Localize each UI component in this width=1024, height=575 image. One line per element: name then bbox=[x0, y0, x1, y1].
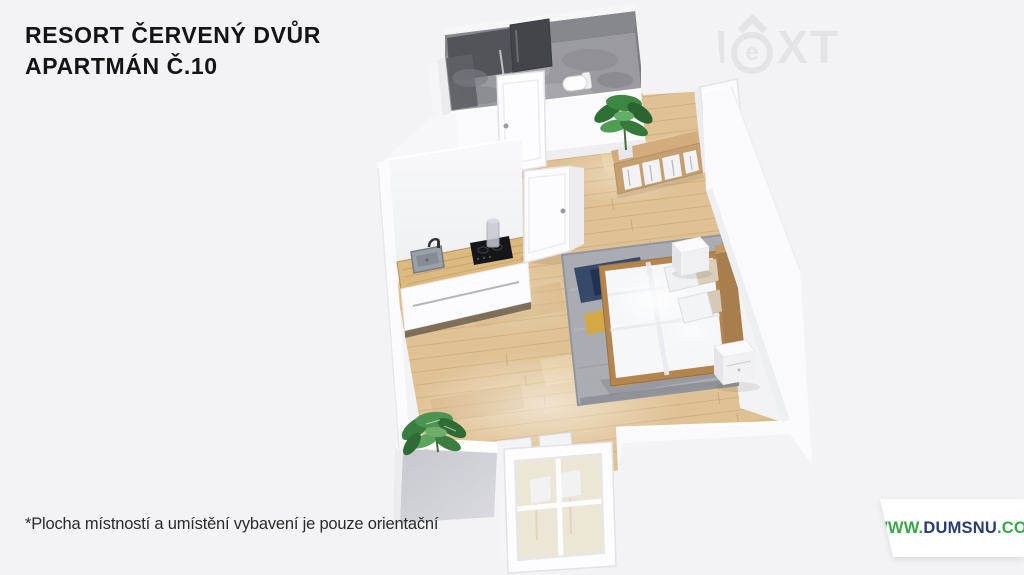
carafe bbox=[487, 219, 499, 248]
northeast-wall-top bbox=[640, 20, 723, 95]
nightstand-north bbox=[672, 237, 712, 279]
website-domain: DUMSNU bbox=[923, 519, 997, 538]
front-wall-outer-face bbox=[400, 449, 497, 523]
door-handle bbox=[504, 124, 509, 129]
floor-plan-render bbox=[0, 0, 1024, 575]
title-line-2: APARTMÁN Č.10 bbox=[25, 51, 321, 82]
door-handle bbox=[561, 209, 566, 214]
website-prefix: WWW. bbox=[872, 519, 923, 538]
nightstand-south bbox=[714, 340, 760, 392]
door-return-wall bbox=[570, 166, 584, 251]
real-estate-floorplan-page: { "header": { "title_line1": "RESORT ČER… bbox=[0, 0, 1024, 575]
disclaimer-footnote: *Plocha místností a umístění vybavení je… bbox=[25, 515, 438, 534]
title-line-1: RESORT ČERVENÝ DVŮR bbox=[25, 20, 321, 51]
website-suffix: .COM bbox=[997, 519, 1024, 538]
website-ribbon: WWW.DUMSNU.COM bbox=[877, 499, 1024, 557]
shower-floor bbox=[452, 69, 488, 87]
front-wall-and-balcony bbox=[393, 432, 616, 573]
page-title: RESORT ČERVENÝ DVŮR APARTMÁN Č.10 bbox=[25, 20, 321, 82]
balcony-glass-door bbox=[504, 442, 616, 573]
